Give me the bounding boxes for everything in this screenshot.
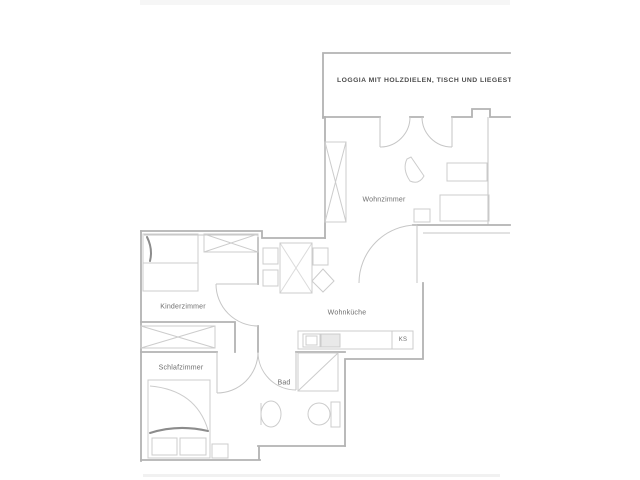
- childroom-door: [216, 284, 258, 326]
- double-bed: [148, 380, 210, 458]
- floor-plan-image: LOGGIA MIT HOLZDIELEN, TISCH UND LIEGEST…: [0, 0, 640, 480]
- bathroom-fixtures: [261, 353, 340, 427]
- bath-sink: [261, 401, 281, 427]
- balcony-door-left: [380, 117, 410, 147]
- room-label-bad: Bad: [277, 380, 290, 387]
- childroom-wardrobe: [204, 234, 258, 252]
- livingroom-top-wall: [323, 109, 510, 117]
- room-label-ks: KS: [399, 337, 407, 343]
- pillow-left: [152, 438, 177, 455]
- kitchen-living-door: [359, 225, 417, 283]
- room-label-schlafzimmer: Schlafzimmer: [159, 365, 204, 372]
- room-label-wohnzimmer: Wohnzimmer: [362, 197, 405, 204]
- bedroom-wardrobe: [141, 326, 215, 348]
- walls: [141, 53, 510, 461]
- room-label-kinderzimmer: Kinderzimmer: [160, 304, 206, 311]
- toilet: [308, 402, 340, 427]
- furniture: [141, 142, 489, 458]
- kitchen-counter: [298, 331, 413, 349]
- coffee-table: [447, 163, 487, 181]
- loggia-annotation: LOGGIA MIT HOLZDIELEN, TISCH UND LIEGEST…: [337, 77, 511, 88]
- room-label-wohnkueche: Wohnküche: [328, 310, 367, 317]
- dining-set: [263, 243, 334, 293]
- stove: [321, 334, 340, 347]
- sofa: [440, 195, 489, 221]
- livingroom-wardrobe: [325, 142, 346, 222]
- bath-right-and-bottom-walls: [345, 283, 423, 446]
- pillow-right: [180, 438, 206, 455]
- floor-plan-drawing: [0, 0, 640, 480]
- childroom-bed: [143, 234, 198, 291]
- balcony-door-right: [422, 117, 452, 147]
- shower: [298, 353, 338, 391]
- armchair: [405, 157, 424, 182]
- side-table: [414, 209, 430, 222]
- nightstand: [212, 444, 228, 458]
- bedroom-door: [217, 352, 258, 393]
